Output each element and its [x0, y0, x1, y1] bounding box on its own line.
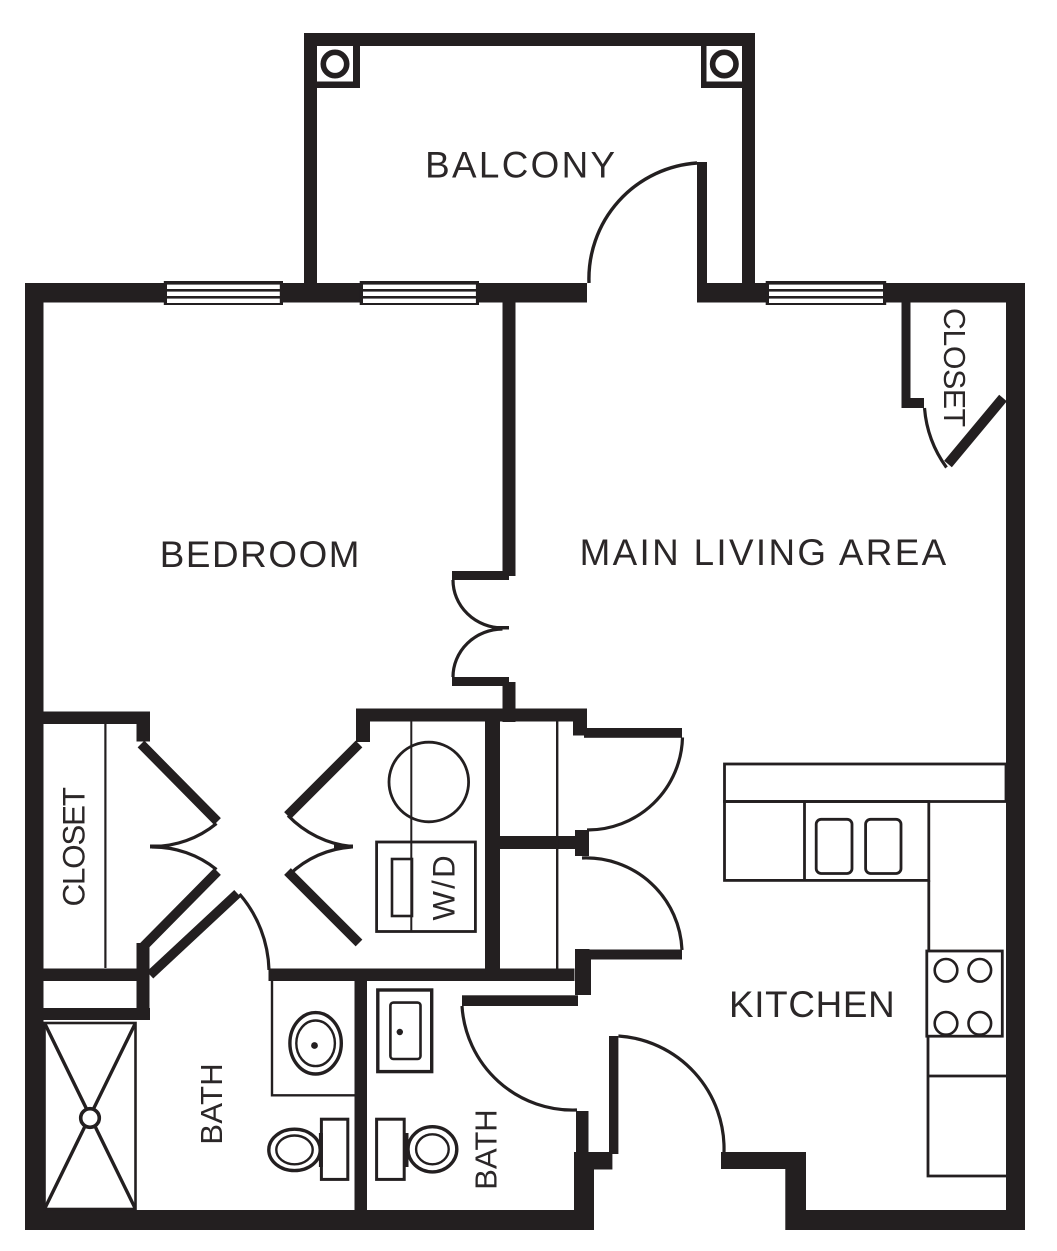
svg-text:BATH: BATH	[468, 1109, 503, 1189]
svg-text:MAIN LIVING AREA: MAIN LIVING AREA	[580, 532, 949, 573]
svg-text:BATH: BATH	[194, 1063, 229, 1145]
svg-text:CLOSET: CLOSET	[937, 308, 970, 427]
svg-text:W/D: W/D	[427, 853, 462, 920]
svg-text:CLOSET: CLOSET	[55, 787, 91, 906]
svg-text:KITCHEN: KITCHEN	[729, 984, 895, 1025]
svg-text:BEDROOM: BEDROOM	[160, 534, 361, 575]
svg-text:BALCONY: BALCONY	[425, 144, 617, 185]
